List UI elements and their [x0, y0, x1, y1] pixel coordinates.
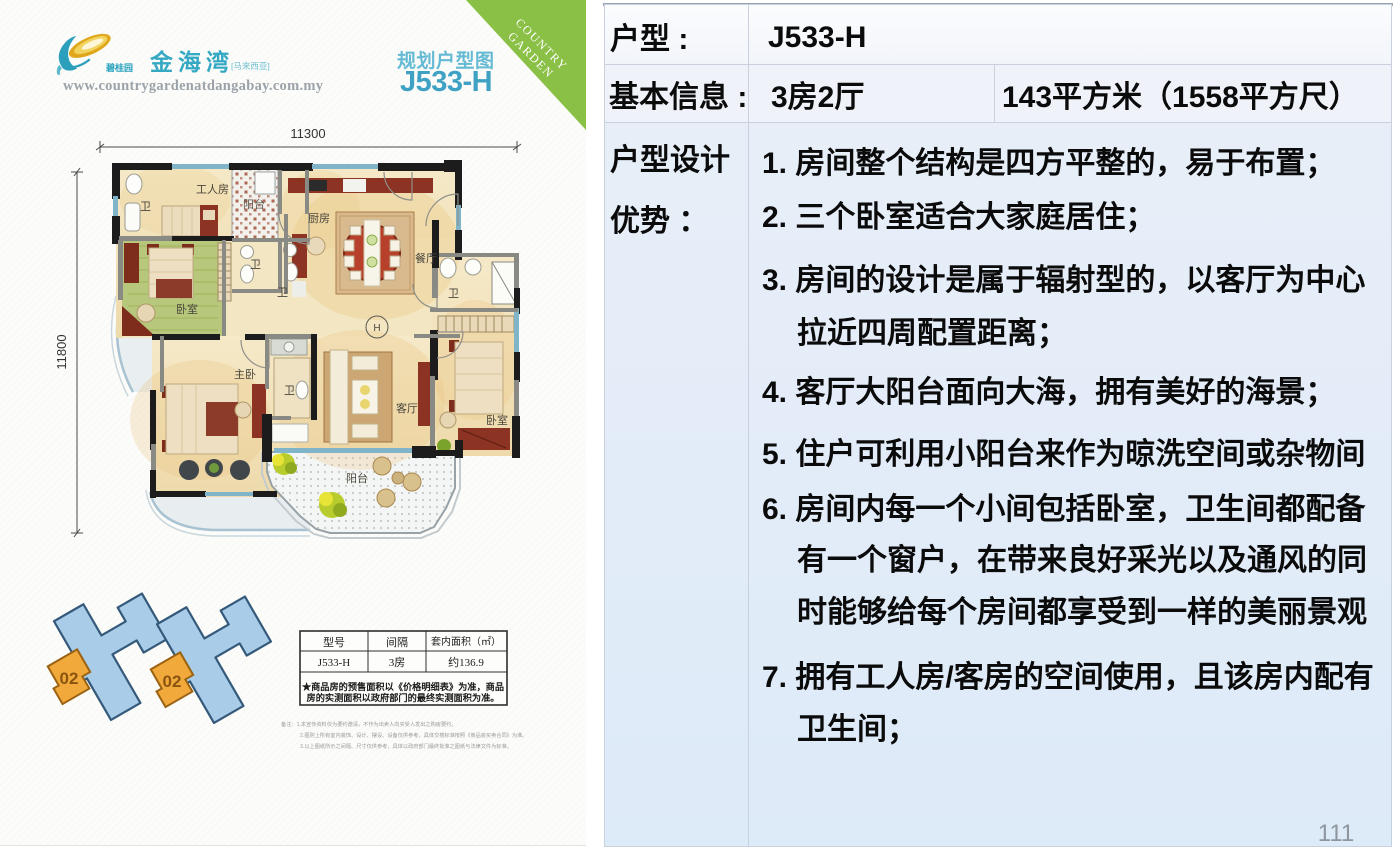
svg-text:3.以上图纸所示之间隔、尺寸仅供参考，具体以政府部门最终批准: 3.以上图纸所示之间隔、尺寸仅供参考，具体以政府部门最终批准之图纸与法律文件为标…	[300, 742, 512, 750]
svg-text:碧桂园: 碧桂园	[105, 62, 133, 73]
svg-text:★商品房的预售面积以《价格明细表》为准，商品: ★商品房的预售面积以《价格明细表》为准，商品	[302, 681, 504, 692]
svg-text:阳台: 阳台	[243, 197, 265, 211]
svg-text:卧室: 卧室	[176, 302, 198, 316]
svg-text:卧室: 卧室	[486, 413, 508, 427]
svg-text:约136.9: 约136.9	[448, 656, 484, 669]
svg-text:房的实测面积以政府部门的最终实测面积为准。: 房的实测面积以政府部门的最终实测面积为准。	[307, 692, 500, 703]
svg-text:厨房: 厨房	[308, 212, 330, 225]
svg-text:卫: 卫	[448, 288, 459, 300]
svg-text:套内面积（㎡）: 套内面积（㎡）	[431, 635, 501, 648]
svg-text:卫: 卫	[250, 259, 261, 271]
svg-text:卫: 卫	[284, 385, 295, 397]
svg-text:主卧: 主卧	[234, 368, 256, 381]
svg-text:间隔: 间隔	[386, 636, 408, 649]
svg-text:型号: 型号	[323, 635, 345, 649]
svg-text:客厅: 客厅	[396, 401, 418, 415]
svg-text:阳台: 阳台	[346, 471, 368, 485]
svg-text:11800: 11800	[54, 334, 69, 369]
svg-text:工人房: 工人房	[196, 183, 229, 196]
svg-text:02: 02	[163, 672, 182, 691]
svg-text:11300: 11300	[290, 126, 325, 141]
svg-text:3房: 3房	[389, 656, 406, 669]
svg-text:餐厅: 餐厅	[415, 251, 437, 265]
svg-text:卫: 卫	[140, 201, 151, 213]
svg-text:H: H	[373, 323, 380, 334]
svg-text:2.图则上所有室内装饰、设计、摆设、设备仅供参考，具体交楼标: 2.图则上所有室内装饰、设计、摆设、设备仅供参考，具体交楼标准按照《商品房买卖合…	[300, 731, 527, 739]
svg-text:备注：1.本宣传资料仅为要约邀请，不作为出卖人向买受人发出之: 备注：1.本宣传资料仅为要约邀请，不作为出卖人向买受人发出之购房要约。	[281, 720, 457, 728]
svg-text:卫: 卫	[277, 287, 288, 299]
svg-text:J533-H: J533-H	[318, 657, 350, 669]
svg-text:02: 02	[60, 669, 79, 688]
